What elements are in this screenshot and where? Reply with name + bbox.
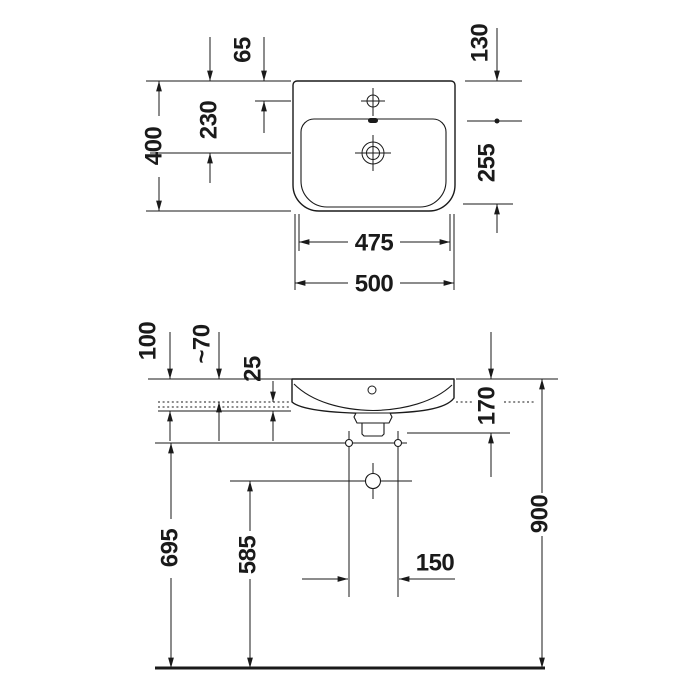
dim-label-rear-to-drain: 230 [195, 101, 222, 140]
dim-label-rim-above-counter: ~70 [188, 324, 215, 363]
drain-outlet-center [366, 474, 381, 489]
drain-fitting-front [354, 413, 392, 436]
dim-label-rear-to-bowl-front: 130 [466, 24, 493, 63]
drawing-canvas: 400 230 65 130 255 475 500 [0, 0, 700, 699]
washbasin-technical-drawing: 400 230 65 130 255 475 500 [0, 0, 700, 699]
dim-label-overall-width: 500 [355, 270, 394, 297]
dim-label-rim-to-overflow: 170 [473, 387, 500, 426]
dim-label-counter-to-fixing: 25 [239, 356, 266, 382]
mounting-hole-right [395, 440, 402, 447]
dim-label-overall-depth: 400 [140, 127, 167, 166]
dim-label-drain-spacing: 150 [416, 549, 455, 576]
mounting-hole-left [346, 440, 353, 447]
overflow-slot [368, 118, 378, 123]
tap-hole-front [368, 386, 376, 394]
dim-label-rim-to-fixing: 100 [134, 322, 161, 361]
basin-outline-front [292, 379, 454, 414]
dim-label-floor-to-drain: 585 [234, 536, 261, 575]
tap-hole-plan [361, 88, 385, 116]
basin-inner-curve-front [294, 384, 452, 411]
drain-plan [355, 135, 391, 171]
dim-label-bowl-front-zone: 255 [473, 144, 500, 183]
dim-label-floor-to-rim: 900 [526, 495, 553, 534]
dim-label-floor-to-mounting: 695 [156, 529, 183, 568]
front-view: 100 ~70 25 170 695 585 900 150 [134, 322, 558, 668]
dim-label-rear-to-tap-hole: 65 [229, 37, 256, 63]
top-view: 400 230 65 130 255 475 500 [140, 24, 522, 298]
dim-label-upper-width: 475 [355, 229, 394, 256]
shared-dimension-point [495, 119, 500, 124]
front-view-dimension-lines [170, 332, 542, 668]
